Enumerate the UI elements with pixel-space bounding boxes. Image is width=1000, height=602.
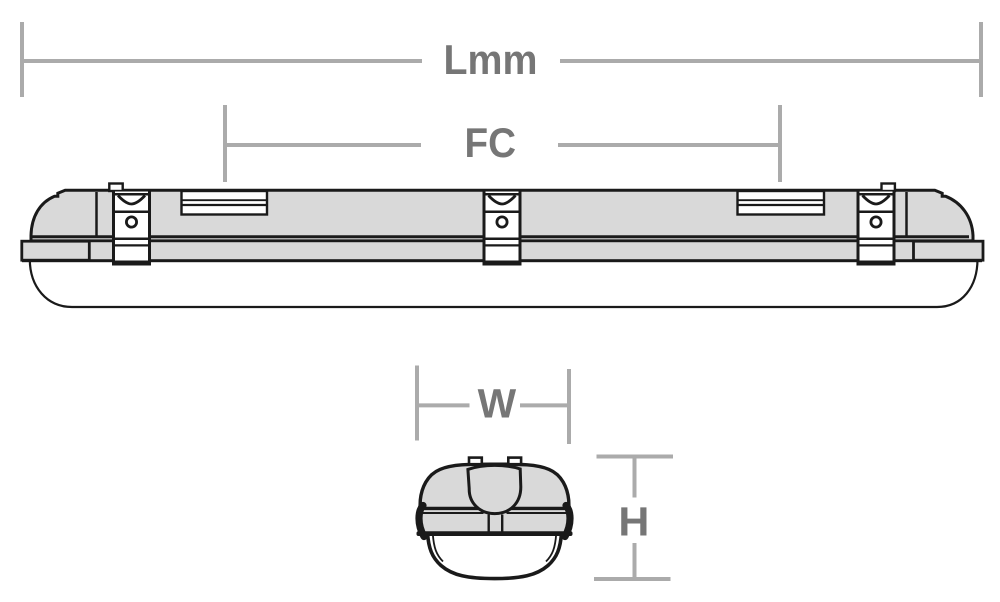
svg-text:W: W bbox=[478, 381, 517, 427]
svg-text:FC: FC bbox=[465, 119, 517, 166]
svg-text:H: H bbox=[618, 499, 649, 545]
svg-text:Lmm: Lmm bbox=[444, 36, 538, 83]
